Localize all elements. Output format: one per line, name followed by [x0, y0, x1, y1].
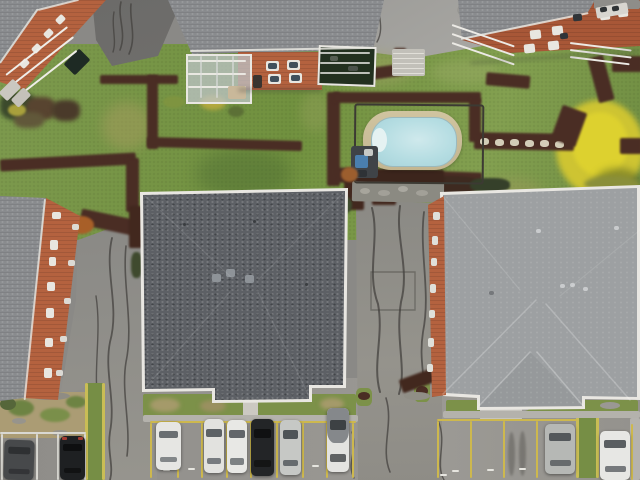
- car-windshield: [604, 440, 627, 448]
- car-black-suv: [251, 419, 274, 476]
- aerial-photo: [0, 0, 640, 480]
- car-rear-window: [605, 466, 626, 472]
- car-rear-window: [330, 454, 345, 462]
- car-windshield: [283, 430, 299, 439]
- vehicles-layer: [0, 0, 640, 480]
- car-rear-window: [254, 460, 270, 467]
- car-white: [600, 431, 630, 480]
- car-windshield: [254, 429, 271, 438]
- car-white-sedan: [227, 420, 247, 473]
- car-silver: [545, 424, 575, 474]
- car-dark-gray: [3, 439, 34, 480]
- car-windshield: [8, 447, 31, 454]
- car-windshield: [63, 444, 82, 451]
- car-silver-suv: [280, 420, 301, 475]
- car-black: [60, 436, 85, 480]
- car-rear-window: [8, 468, 29, 474]
- car-taillight: [62, 437, 67, 439]
- car-taillight: [78, 437, 83, 439]
- car-rear-window: [64, 468, 82, 473]
- car-rear-window: [207, 458, 221, 464]
- car-rear-window: [283, 460, 298, 467]
- car-white-suv: [156, 422, 181, 470]
- car-white-sedan: [204, 419, 224, 473]
- car-rear-window: [160, 457, 178, 463]
- car-windshield: [159, 431, 178, 439]
- car-windshield: [229, 430, 244, 438]
- car-windshield: [549, 433, 572, 441]
- car-windshield: [330, 420, 347, 430]
- car-rear-window: [230, 458, 244, 464]
- car-windshield: [206, 429, 221, 438]
- car-gray-white-suv: [327, 408, 349, 472]
- car-rear-window: [550, 460, 571, 466]
